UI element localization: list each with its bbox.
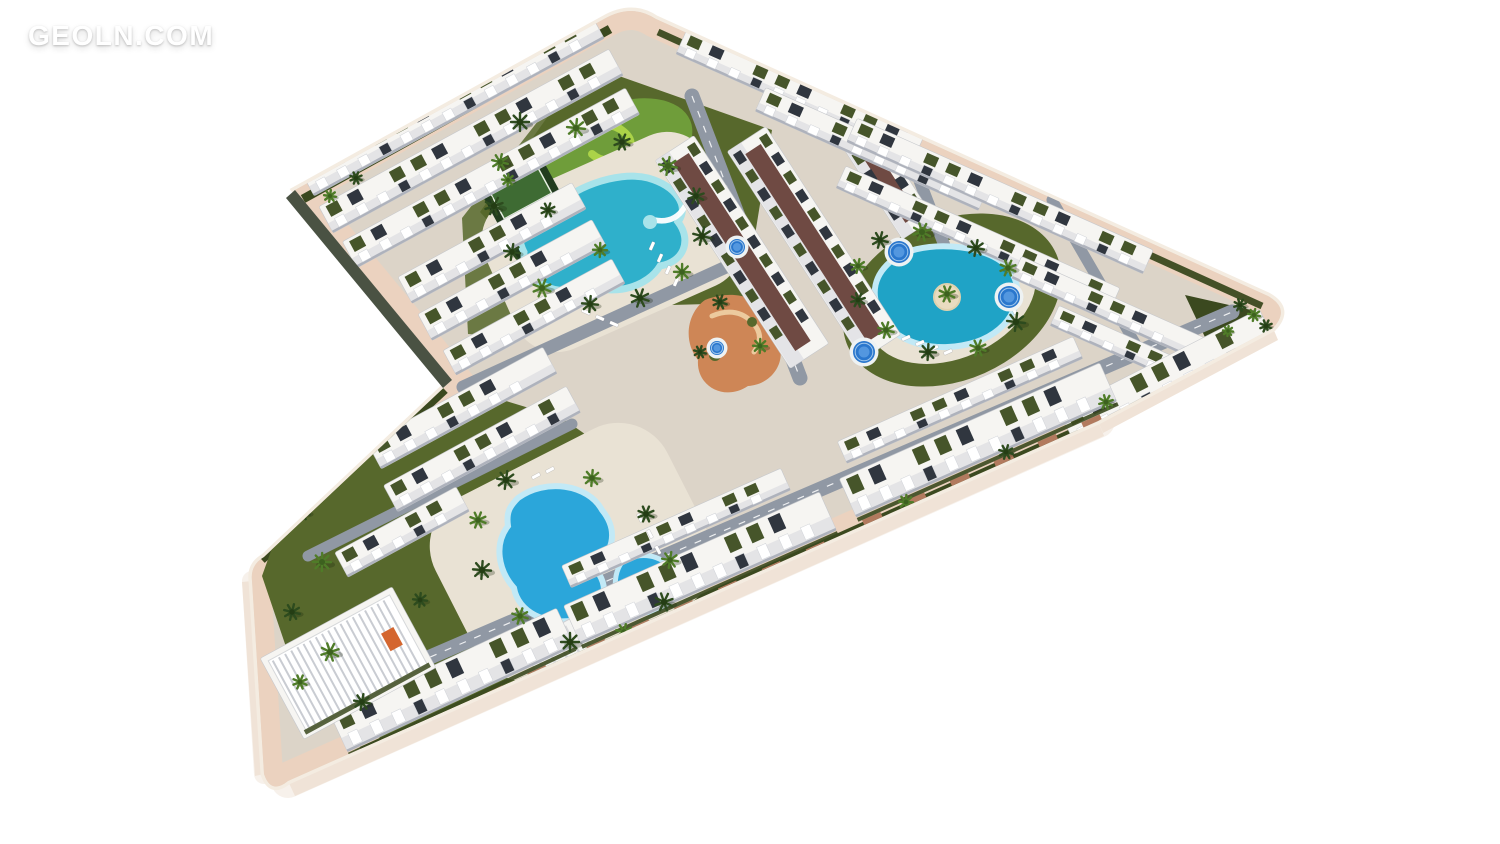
spa-pool — [707, 338, 728, 359]
aerial-render: GEOLN.COM — [0, 0, 1500, 844]
slide-splash-pool — [643, 215, 657, 229]
spa-pool — [850, 338, 879, 367]
spa-pool — [995, 283, 1024, 312]
spa-pool — [726, 236, 749, 259]
plaza-lawn-dot — [747, 317, 757, 327]
site-plan-svg — [0, 0, 1500, 844]
watermark-text: GEOLN.COM — [28, 20, 214, 52]
